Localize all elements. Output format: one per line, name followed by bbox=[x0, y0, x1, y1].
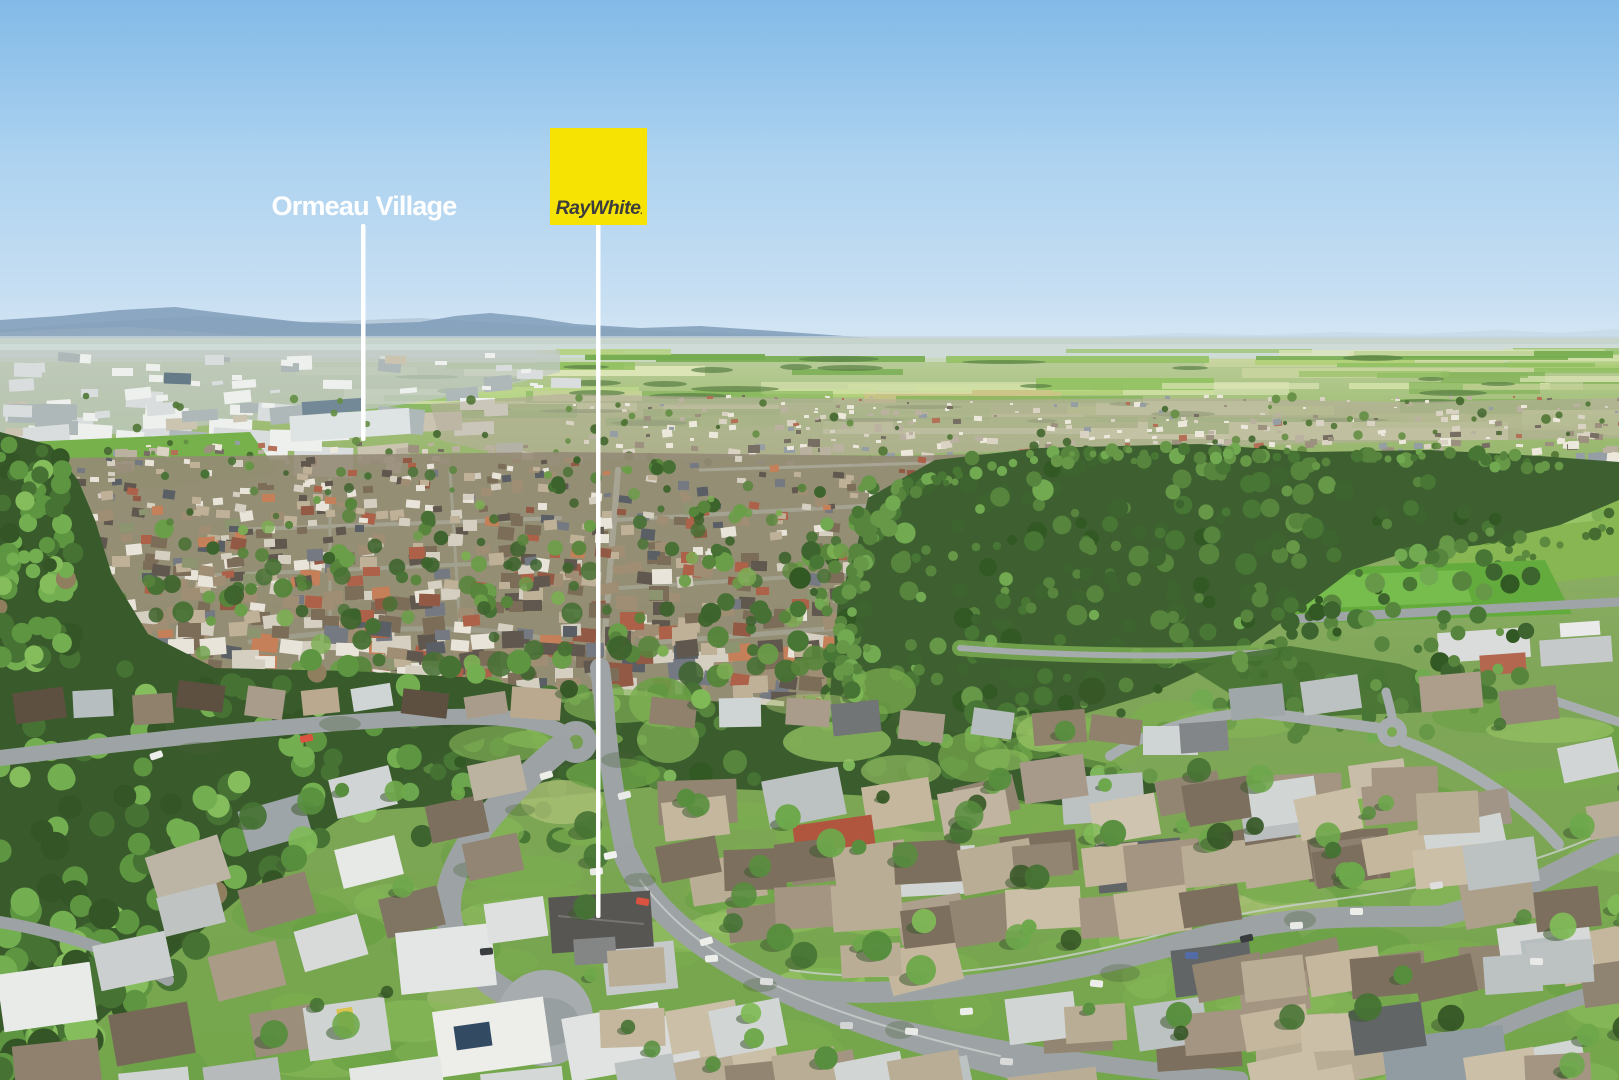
svg-text:RayWhite.: RayWhite. bbox=[556, 197, 643, 219]
svg-text:Ormeau Village: Ormeau Village bbox=[272, 191, 458, 221]
